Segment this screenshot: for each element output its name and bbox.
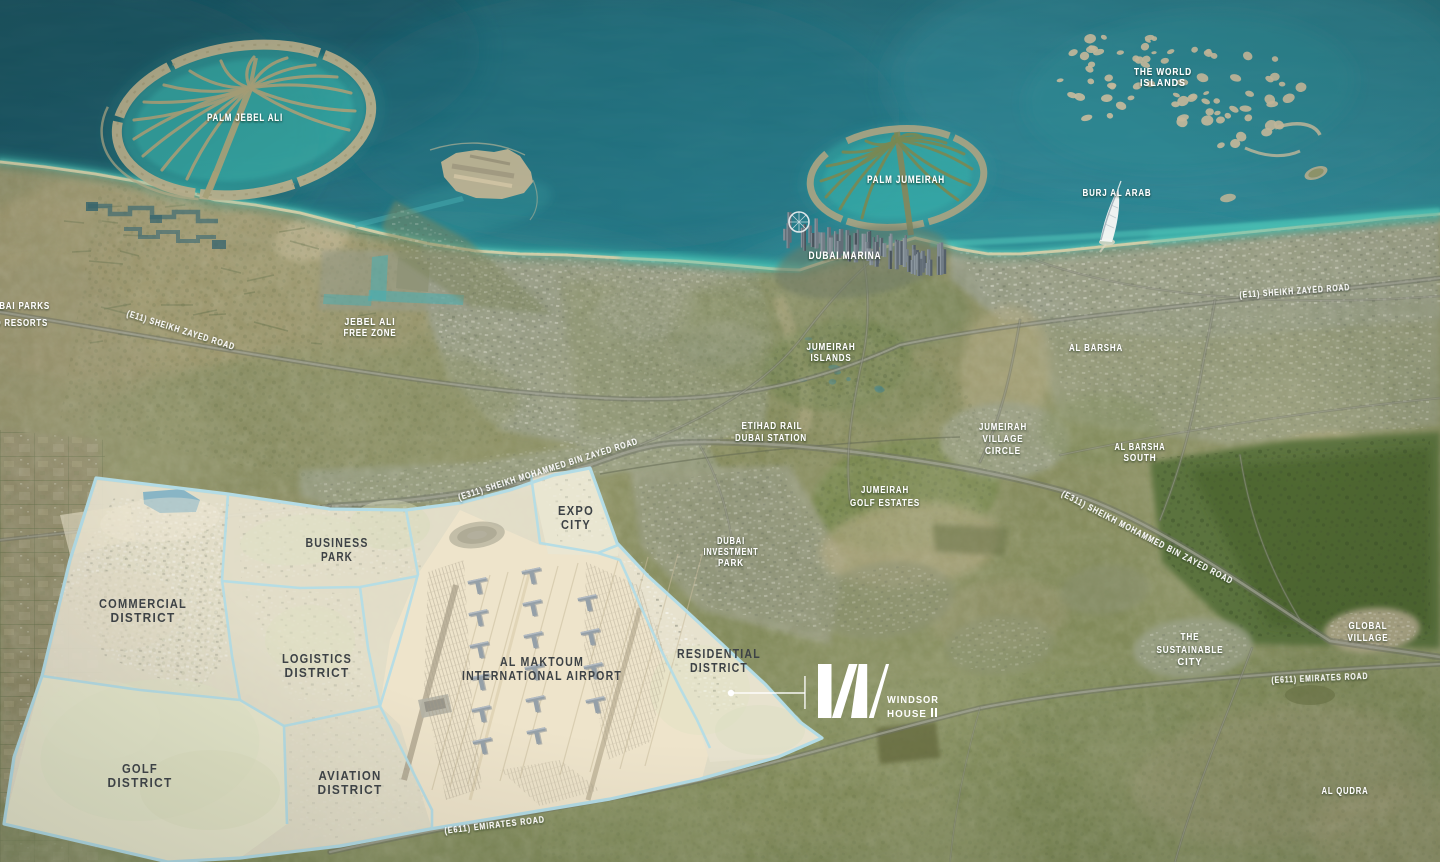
svg-text:VILLAGE: VILLAGE: [983, 434, 1024, 445]
svg-text:CITY: CITY: [1178, 657, 1203, 668]
svg-text:AVIATION: AVIATION: [319, 768, 382, 783]
svg-text:ISLANDS: ISLANDS: [1140, 77, 1186, 89]
svg-text:AL MAKTOUM: AL MAKTOUM: [500, 655, 584, 669]
svg-text:THE: THE: [1181, 632, 1200, 643]
svg-text:ISLANDS: ISLANDS: [811, 352, 852, 364]
svg-text:DISTRICT: DISTRICT: [111, 610, 176, 625]
svg-text:PARK: PARK: [321, 549, 353, 564]
svg-text:AL QUDRA: AL QUDRA: [1322, 785, 1369, 797]
svg-text:CIRCLE: CIRCLE: [985, 446, 1021, 457]
svg-text:DUBAI STATION: DUBAI STATION: [735, 433, 807, 444]
svg-text:BURJ AL ARAB: BURJ AL ARAB: [1083, 187, 1152, 199]
svg-text:COMMERCIAL: COMMERCIAL: [99, 596, 187, 611]
svg-text:INVESTMENT: INVESTMENT: [704, 547, 759, 558]
svg-text:RESIDENTIAL: RESIDENTIAL: [677, 647, 761, 661]
svg-text:LOGISTICS: LOGISTICS: [282, 651, 352, 666]
svg-text:BUSINESS: BUSINESS: [306, 535, 369, 550]
svg-text:JUMEIRAH: JUMEIRAH: [861, 485, 909, 496]
svg-text:DUBAI MARINA: DUBAI MARINA: [809, 250, 882, 262]
svg-text:VILLAGE: VILLAGE: [1348, 633, 1389, 644]
svg-text:DISTRICT: DISTRICT: [318, 782, 383, 797]
svg-text:WINDSOR: WINDSOR: [887, 695, 939, 706]
svg-text:GOLF ESTATES: GOLF ESTATES: [850, 498, 920, 509]
svg-text:DISTRICT: DISTRICT: [285, 665, 350, 680]
svg-text:GOLF: GOLF: [122, 761, 158, 776]
svg-text:SUSTAINABLE: SUSTAINABLE: [1157, 645, 1224, 656]
svg-text:AL BARSHA: AL BARSHA: [1115, 442, 1166, 453]
svg-text:GLOBAL: GLOBAL: [1349, 621, 1388, 632]
svg-text:DISTRICT: DISTRICT: [690, 661, 748, 675]
svg-text:INTERNATIONAL AIRPORT: INTERNATIONAL AIRPORT: [462, 669, 622, 683]
svg-text:PALM JEBEL ALI: PALM JEBEL ALI: [207, 112, 283, 124]
svg-text:JUMEIRAH: JUMEIRAH: [979, 422, 1027, 433]
svg-text:DUBAI: DUBAI: [717, 536, 745, 547]
svg-text:FREE ZONE: FREE ZONE: [344, 327, 397, 339]
svg-text:DUBAI PARKS: DUBAI PARKS: [0, 300, 50, 312]
svg-text:SOUTH: SOUTH: [1124, 453, 1157, 464]
svg-text:AND RESORTS: AND RESORTS: [0, 317, 48, 329]
svg-text:CITY: CITY: [561, 518, 591, 532]
svg-text:AL BARSHA: AL BARSHA: [1069, 342, 1123, 354]
svg-text:PALM JUMEIRAH: PALM JUMEIRAH: [867, 174, 945, 186]
svg-text:ETIHAD RAIL: ETIHAD RAIL: [742, 421, 803, 432]
svg-text:EXPO: EXPO: [558, 504, 594, 518]
svg-text:DISTRICT: DISTRICT: [108, 775, 173, 790]
svg-text:HOUSE: HOUSE: [887, 709, 927, 720]
svg-text:PARK: PARK: [718, 558, 744, 569]
